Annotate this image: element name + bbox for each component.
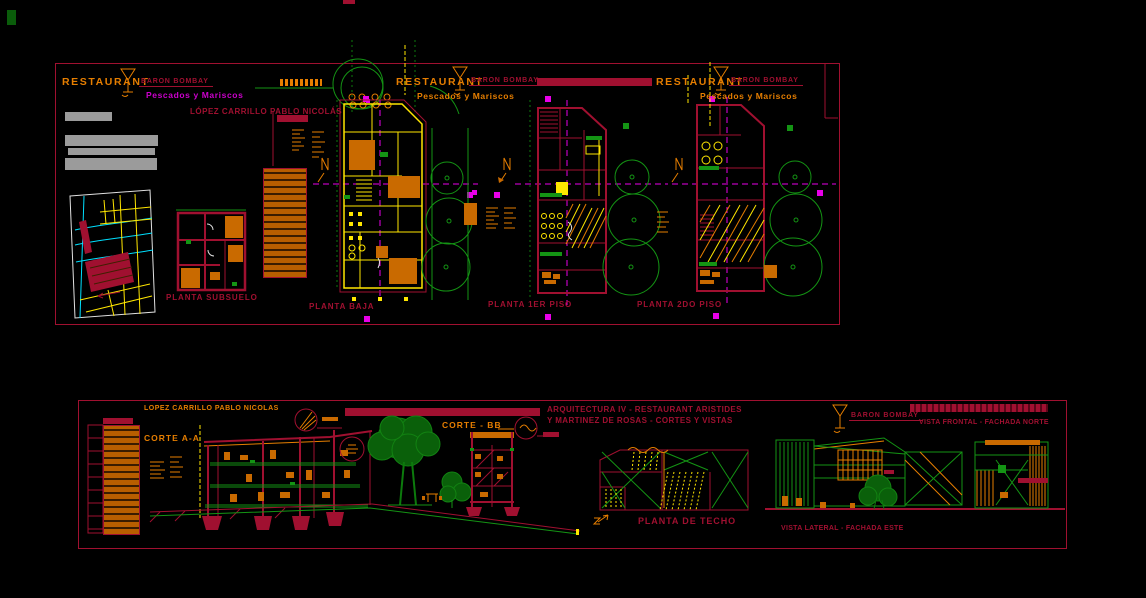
vista-lateral-drawing bbox=[765, 438, 1065, 509]
schedule-strip-top bbox=[273, 112, 325, 166]
cocktail-logo-icon bbox=[119, 66, 137, 98]
label-corte-aa: CORTE A-A bbox=[144, 433, 200, 443]
brand-name-2: BARON BOMBAY bbox=[469, 77, 543, 86]
tagline-3: Pescados y Mariscos bbox=[700, 91, 797, 101]
cad-sheet-canvas: RESTAURANT BARON BOMBAY Pescados y Maris… bbox=[0, 0, 1146, 598]
label-planta-1er-piso: PLANTA 1ER PISO bbox=[488, 300, 572, 309]
brand-name-3: BARON BOMBAY bbox=[729, 77, 803, 86]
sheet-title-line1: ARQUITECTURA IV - RESTAURANT ARISTIDES bbox=[547, 405, 742, 414]
sheet-title-line2: Y MARTINEZ DE ROSAS - CORTES Y VISTAS bbox=[547, 416, 733, 425]
brand-name-bottom: BARON BOMBAY bbox=[849, 412, 923, 421]
hatched-schedule-top bbox=[263, 168, 307, 278]
hatched-legend-bottom bbox=[103, 425, 140, 535]
label-planta-de-techo: PLANTA DE TECHO bbox=[638, 516, 736, 526]
site-plan bbox=[70, 190, 155, 318]
cocktail-logo-icon bbox=[831, 402, 849, 434]
planta-baja-drawing bbox=[337, 100, 477, 301]
label-planta-subsuelo: PLANTA SUBSUELO bbox=[166, 293, 258, 302]
author-name-bottom: LOPEZ CARRILLO PABLO NICOLAS bbox=[144, 405, 279, 412]
label-vista-lateral: VISTA LATERAL - FACHADA ESTE bbox=[781, 525, 904, 532]
label-corte-bb: CORTE - BB bbox=[442, 420, 502, 430]
label-planta-baja: PLANTA BAJA bbox=[309, 302, 374, 311]
planta-techo-drawing bbox=[594, 448, 748, 525]
label-planta-2do-piso: PLANTA 2DO PISO bbox=[637, 300, 722, 309]
author-name-top: LÓPEZ CARRILLO PABLO NICOLÁS bbox=[190, 107, 342, 116]
planta-1er-drawing bbox=[530, 100, 669, 300]
planta-subsuelo-drawing bbox=[176, 210, 246, 290]
tagline-1: Pescados y Mariscos bbox=[146, 90, 243, 100]
vista-frontal-drawing bbox=[975, 440, 1048, 508]
label-vista-frontal: VISTA FRONTAL - FACHADA NORTE bbox=[919, 419, 1049, 426]
brand-name-1: BARON BOMBAY bbox=[139, 78, 213, 87]
tagline-2: Pescados y Mariscos bbox=[417, 91, 514, 101]
